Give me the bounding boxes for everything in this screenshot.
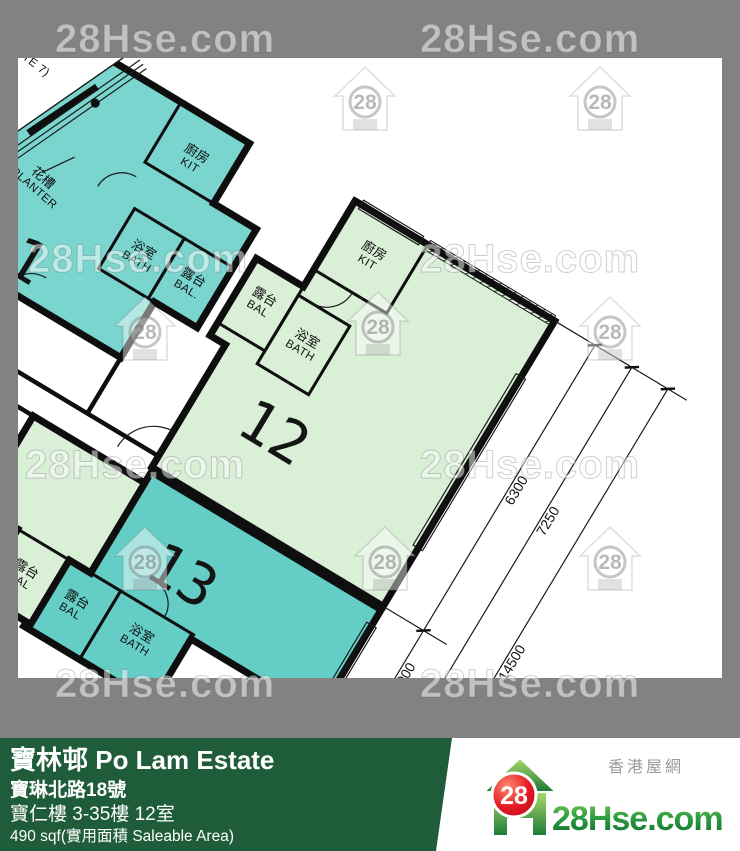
site-name-zh: 香港屋網	[608, 758, 684, 776]
svg-text:28: 28	[588, 91, 612, 114]
svg-text:28: 28	[133, 551, 157, 574]
watermark-text: 28Hse.com	[420, 662, 640, 706]
watermark-text: 28Hse.com	[28, 237, 248, 281]
floorplan-image: 6300 1900 7250 14500 (NOTE 7) 花槽 PLANTER…	[0, 0, 740, 851]
watermark-text: 28Hse.com	[55, 662, 275, 706]
footer-bar: 寶林邨 Po Lam Estate 寶琳北路18號 寶仁樓 3-35樓 12室 …	[0, 738, 740, 851]
estate-address: 寶琳北路18號	[10, 778, 126, 801]
svg-text:28: 28	[598, 321, 622, 344]
svg-text:28: 28	[366, 316, 390, 339]
watermark-text: 28Hse.com	[420, 443, 640, 487]
svg-text:28: 28	[353, 91, 377, 114]
saleable-area: 490 sqf(實用面積 Saleable Area)	[10, 826, 234, 845]
svg-text:28: 28	[598, 551, 622, 574]
svg-text:28: 28	[133, 321, 157, 344]
block-floor-flat: 寶仁樓 3-35樓 12室	[10, 803, 175, 825]
watermark-text: 28Hse.com	[420, 237, 640, 281]
brand-badge-number: 28	[500, 782, 528, 810]
estate-title: 寶林邨 Po Lam Estate	[10, 745, 274, 775]
brand-wordmark: 28Hse.com	[552, 800, 723, 838]
watermark-text: 28Hse.com	[420, 17, 640, 61]
watermark-text: 28Hse.com	[55, 17, 275, 61]
svg-text:28: 28	[373, 551, 397, 574]
floorplan-svg: 6300 1900 7250 14500 (NOTE 7) 花槽 PLANTER…	[0, 0, 740, 851]
watermark-text: 28Hse.com	[25, 443, 245, 487]
